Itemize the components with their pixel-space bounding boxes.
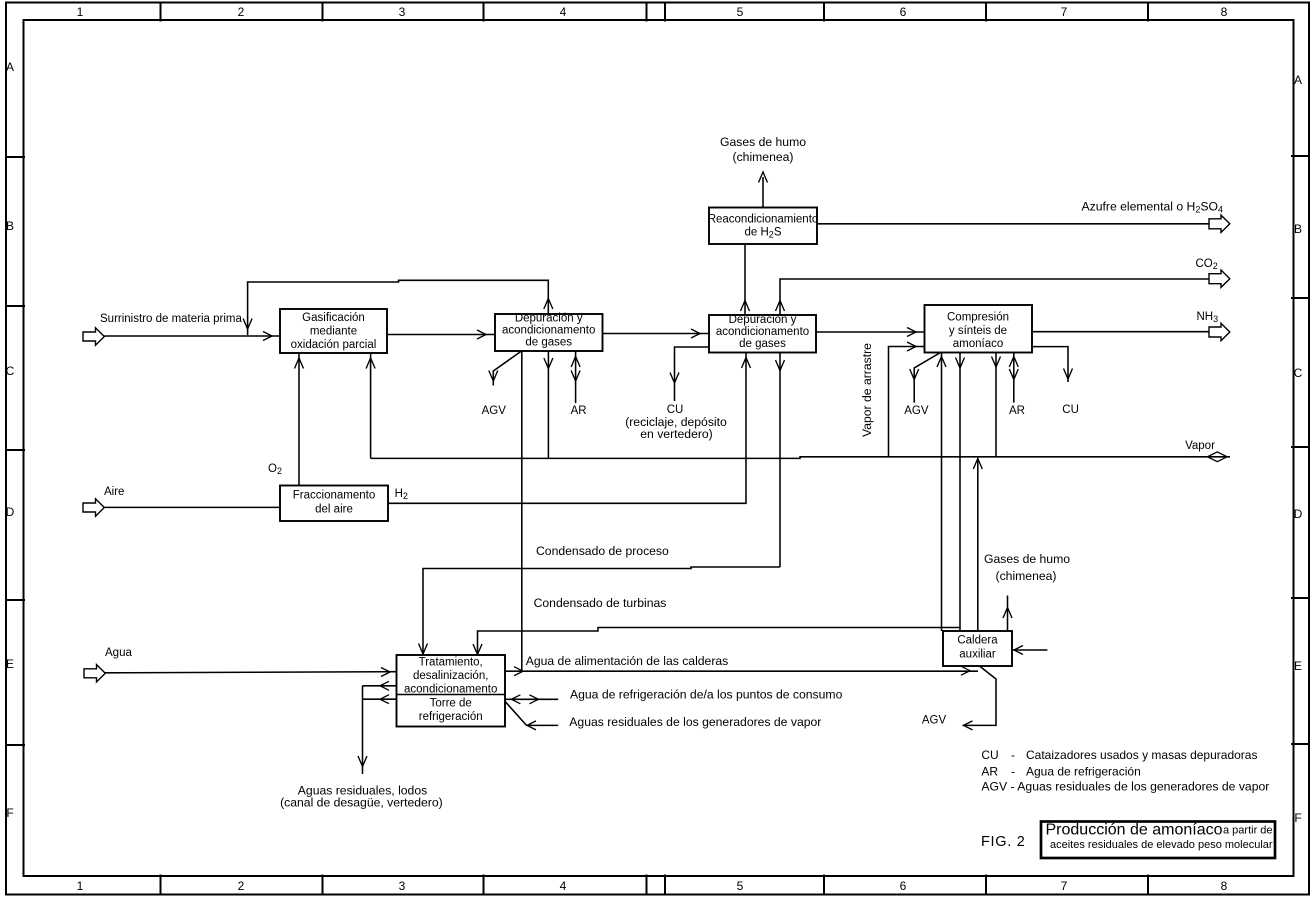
svg-text:-: - <box>1011 748 1015 762</box>
svg-text:Condensado de turbinas: Condensado de turbinas <box>534 596 667 610</box>
svg-text:Aire: Aire <box>104 486 124 498</box>
svg-text:AR: AR <box>981 764 998 778</box>
svg-text:CU: CU <box>981 748 998 762</box>
svg-text:AGV - Aguas residuales de los: AGV - Aguas residuales de los generadore… <box>981 780 1269 794</box>
svg-text:A: A <box>1294 73 1302 87</box>
svg-text:Depuración y: Depuración y <box>515 313 583 325</box>
svg-text:Compresión: Compresión <box>947 312 1009 324</box>
svg-text:Gasificación: Gasificación <box>302 312 365 324</box>
svg-text:4: 4 <box>560 879 567 893</box>
svg-text:de H2S: de H2S <box>745 227 782 240</box>
svg-text:Agua de refrigeración de/a los: Agua de refrigeración de/a los puntos de… <box>570 688 843 702</box>
svg-text:refrigeración: refrigeración <box>419 711 483 723</box>
svg-text:1: 1 <box>77 879 84 893</box>
svg-text:CU: CU <box>1062 404 1079 416</box>
svg-text:oxidación parcial: oxidación parcial <box>291 339 377 351</box>
svg-text:Tratamiento,: Tratamiento, <box>419 657 483 669</box>
svg-text:AGV: AGV <box>922 715 947 727</box>
svg-text:Depuración y: Depuración y <box>729 314 797 326</box>
svg-text:Gases de humo: Gases de humo <box>984 552 1070 566</box>
svg-text:5: 5 <box>737 879 744 893</box>
svg-text:de gases: de gases <box>739 338 786 350</box>
svg-text:1: 1 <box>77 5 84 19</box>
svg-text:FIG. 2: FIG. 2 <box>981 834 1026 850</box>
svg-text:D: D <box>6 505 15 519</box>
svg-text:D: D <box>1294 507 1303 521</box>
svg-text:5: 5 <box>737 5 744 19</box>
svg-text:(chimenea): (chimenea) <box>996 569 1057 583</box>
svg-text:Fraccionamento: Fraccionamento <box>293 490 375 502</box>
svg-text:del aire: del aire <box>315 504 353 516</box>
svg-text:Producción de amoníaco: Producción de amoníaco <box>1046 822 1223 839</box>
svg-text:y sínteis de: y sínteis de <box>949 325 1007 337</box>
svg-text:a partir de: a partir de <box>1223 825 1273 837</box>
svg-text:Azufre elemental o H2SO4: Azufre elemental o H2SO4 <box>1082 200 1223 215</box>
svg-text:F: F <box>1294 811 1301 825</box>
svg-text:3: 3 <box>399 879 406 893</box>
svg-text:AGV: AGV <box>904 405 929 417</box>
svg-text:AGV: AGV <box>482 405 507 417</box>
svg-text:Vapor: Vapor <box>1185 440 1215 452</box>
svg-text:6: 6 <box>900 5 907 19</box>
svg-text:2: 2 <box>238 879 245 893</box>
svg-text:AR: AR <box>1009 405 1025 417</box>
svg-text:acondicionamento: acondicionamento <box>716 326 809 338</box>
svg-text:auxiliar: auxiliar <box>959 649 996 661</box>
svg-text:desalinización,: desalinización, <box>413 670 488 682</box>
svg-text:8: 8 <box>1221 5 1228 19</box>
svg-text:Aguas residuales de los genera: Aguas residuales de los generadores de v… <box>569 715 821 729</box>
svg-text:de gases: de gases <box>525 337 572 349</box>
svg-text:aceites residuales de elevado: aceites residuales de elevado peso molec… <box>1050 839 1273 851</box>
svg-text:-: - <box>1011 764 1015 778</box>
svg-text:Agua: Agua <box>105 647 132 659</box>
svg-text:C: C <box>1294 366 1303 380</box>
svg-text:acondicionamento: acondicionamento <box>502 325 595 337</box>
svg-text:(chimenea): (chimenea) <box>733 150 794 164</box>
svg-text:Torre de: Torre de <box>430 698 472 710</box>
svg-text:C: C <box>6 364 15 378</box>
svg-text:acondicionamento: acondicionamento <box>404 684 497 696</box>
svg-text:Reacondicionamiento: Reacondicionamiento <box>708 214 819 226</box>
svg-text:6: 6 <box>900 879 907 893</box>
svg-text:A: A <box>6 60 14 74</box>
svg-text:Condensado de proceso: Condensado de proceso <box>536 544 669 558</box>
svg-text:2: 2 <box>238 5 245 19</box>
svg-text:Surrinistro de materia prima: Surrinistro de materia prima <box>100 313 242 325</box>
svg-text:7: 7 <box>1061 5 1068 19</box>
svg-text:7: 7 <box>1061 879 1068 893</box>
svg-text:Vapor de arrastre: Vapor de arrastre <box>860 343 874 437</box>
svg-text:E: E <box>1294 659 1302 673</box>
svg-text:Caldera: Caldera <box>957 635 998 647</box>
svg-text:en vertedero): en vertedero) <box>640 427 713 441</box>
svg-text:B: B <box>6 219 14 233</box>
svg-text:Gases de humo: Gases de humo <box>720 135 806 149</box>
svg-text:AR: AR <box>571 405 587 417</box>
svg-text:F: F <box>6 806 13 820</box>
svg-text:8: 8 <box>1221 879 1228 893</box>
svg-text:E: E <box>6 657 14 671</box>
svg-text:mediante: mediante <box>310 326 357 338</box>
svg-text:B: B <box>1294 222 1302 236</box>
svg-text:3: 3 <box>399 5 406 19</box>
svg-text:amoníaco: amoníaco <box>953 338 1004 350</box>
svg-text:4: 4 <box>560 5 567 19</box>
svg-text:(canal de desagüe, vertedero): (canal de desagüe, vertedero) <box>280 796 443 810</box>
svg-text:Agua de refrigeración: Agua de refrigeración <box>1026 764 1141 778</box>
svg-text:Agua de alimentación de las ca: Agua de alimentación de las calderas <box>526 654 729 668</box>
svg-text:Cataizadores usados y masas de: Cataizadores usados y masas depuradoras <box>1026 748 1257 762</box>
